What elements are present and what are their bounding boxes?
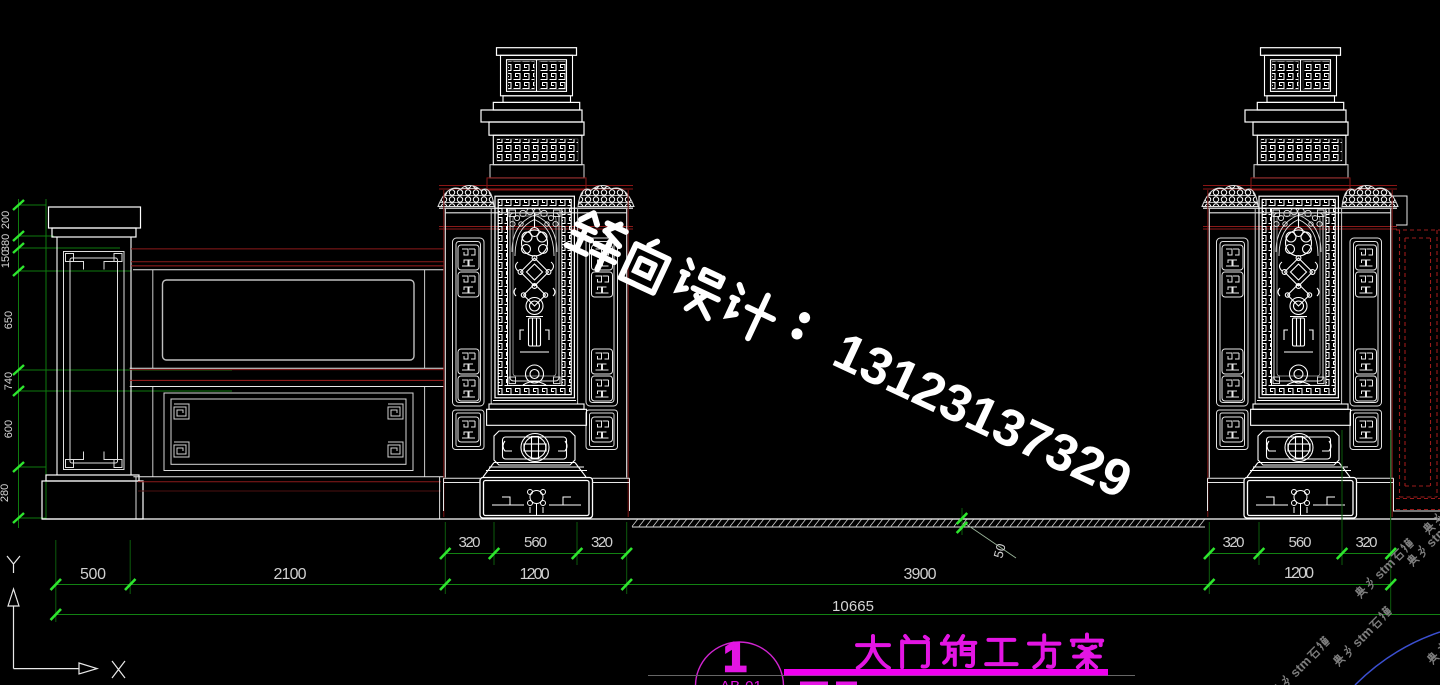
svg-text:650: 650 [3,311,15,329]
svg-text:560: 560 [524,534,547,551]
svg-text:150: 150 [0,250,12,268]
svg-text:200: 200 [0,211,12,229]
svg-text:560: 560 [1289,534,1312,551]
svg-text:320: 320 [591,534,613,551]
svg-text:740: 740 [3,372,15,390]
svg-text:280: 280 [0,484,11,502]
svg-text:1200: 1200 [1284,565,1314,582]
svg-text:2100: 2100 [274,566,307,583]
svg-text:1200: 1200 [520,566,550,583]
svg-text:320: 320 [1223,534,1245,551]
svg-text:380: 380 [0,234,12,252]
svg-text:320: 320 [459,534,481,551]
svg-text:3900: 3900 [904,566,937,583]
svg-text:320: 320 [1356,534,1378,551]
svg-text:600: 600 [3,420,15,438]
svg-text:500: 500 [80,566,106,583]
svg-text:1: 1 [724,634,747,680]
svg-text:AB-01: AB-01 [720,678,762,685]
svg-text:10665: 10665 [832,598,874,615]
